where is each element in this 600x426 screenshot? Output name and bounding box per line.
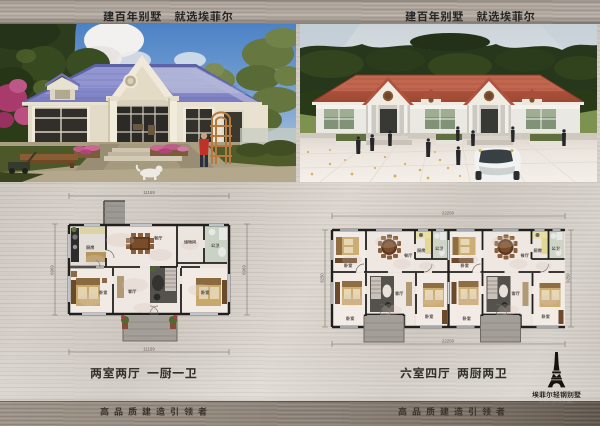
svg-text:22250: 22250 <box>442 338 455 343</box>
svg-text:9250: 9250 <box>320 273 325 283</box>
svg-text:11169: 11169 <box>143 346 155 351</box>
svg-text:6969: 6969 <box>242 265 247 275</box>
svg-text:9250: 9250 <box>566 273 571 283</box>
svg-text:Ei-Fei Light Steel Villa: Ei-Fei Light Steel Villa <box>539 401 572 405</box>
svg-text:6969: 6969 <box>50 265 55 275</box>
svg-text:22250: 22250 <box>442 210 455 215</box>
svg-text:11169: 11169 <box>143 190 155 195</box>
